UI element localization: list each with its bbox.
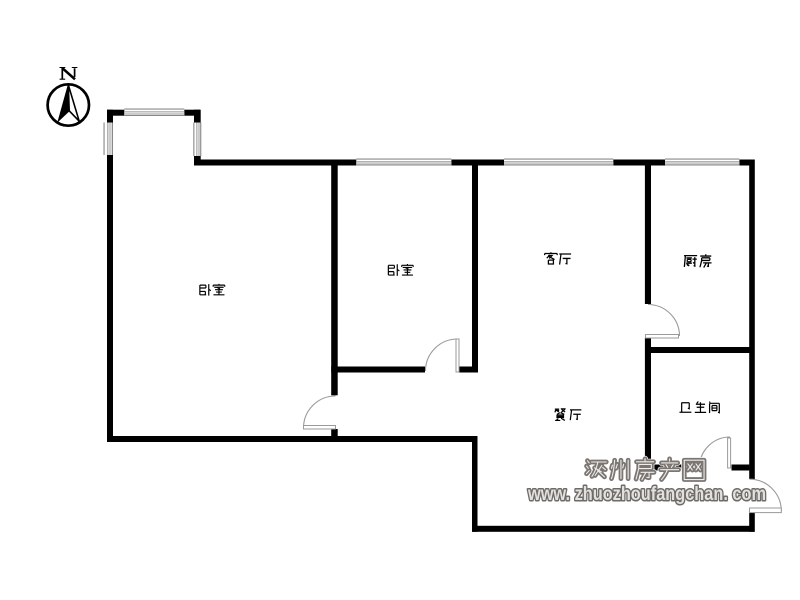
svg-text:www. zhuozhoufangchan. com: www. zhuozhoufangchan. com (527, 483, 766, 505)
